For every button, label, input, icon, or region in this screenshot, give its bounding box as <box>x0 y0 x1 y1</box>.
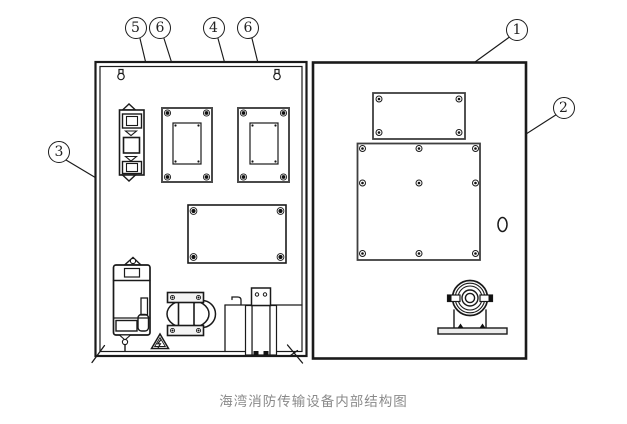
mounting-keyhole-right-icon <box>274 70 280 80</box>
module-plate-right <box>238 108 289 182</box>
callout-5-label: 5 <box>131 21 140 35</box>
callout-3: 3 <box>48 141 70 163</box>
main-module-board <box>358 144 481 261</box>
fuse-terminal-block <box>120 104 145 181</box>
diagram-canvas: 5 6 4 6 1 2 3 海湾消防传输设备内部结构图 <box>0 0 627 424</box>
callout-1-label: 1 <box>513 23 522 37</box>
right-cabinet <box>313 63 526 359</box>
module-plate-left <box>162 108 212 182</box>
top-module-board <box>373 93 465 139</box>
callout-6-left: 6 <box>149 17 171 39</box>
callout-6-right: 6 <box>237 17 259 39</box>
callout-3-label: 3 <box>55 145 64 159</box>
left-cabinet <box>92 62 307 363</box>
callout-6-right-label: 6 <box>244 21 253 35</box>
callout-2: 2 <box>553 97 575 119</box>
center-module-board <box>188 205 286 263</box>
figure-caption: 海湾消防传输设备内部结构图 <box>0 390 627 410</box>
diagram-line-art <box>0 0 627 424</box>
callout-4: 4 <box>203 17 225 39</box>
mounting-keyhole-left-icon <box>118 70 124 80</box>
callout-1: 1 <box>506 19 528 41</box>
callout-6-left-label: 6 <box>156 21 165 35</box>
callout-5: 5 <box>125 17 147 39</box>
callout-2-label: 2 <box>559 101 568 115</box>
callout-4-label: 4 <box>209 21 218 35</box>
